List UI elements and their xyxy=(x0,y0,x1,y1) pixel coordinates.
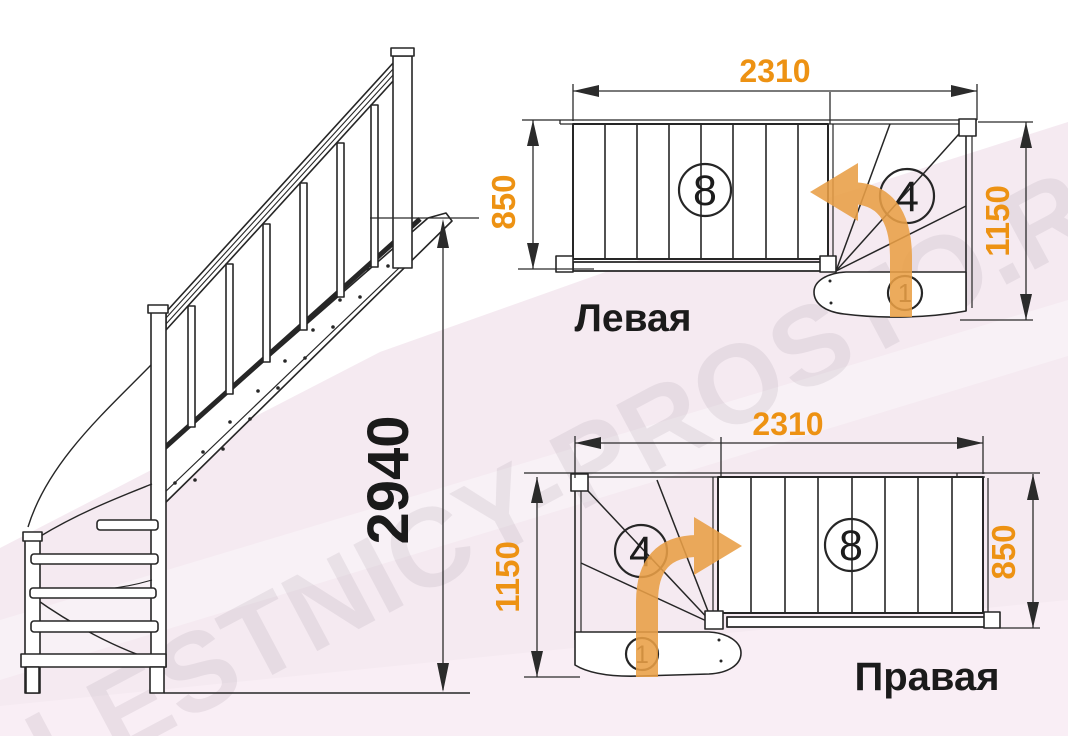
turn-depth-value: 1150 xyxy=(979,185,1016,257)
total-height-value: 2940 xyxy=(356,415,421,544)
arrowhead-down-icon xyxy=(437,663,449,692)
newel-square xyxy=(705,611,723,629)
flight-width-value: 850 xyxy=(485,174,522,229)
stair-drawing-sheet: LESTNICY-PROSTO.RU xyxy=(0,0,1068,736)
plan-left: 8 4 1 2310 xyxy=(485,53,1033,340)
middle-newel-cap xyxy=(148,305,168,313)
stair-side-elevation xyxy=(21,48,470,693)
bottom-newel-cap xyxy=(23,532,42,541)
middle-newel-post xyxy=(151,312,166,667)
plan-right: 8 4 1 2310 xyxy=(489,406,1040,699)
length-value: 2310 xyxy=(752,406,823,442)
plan-left-dimension-turn-depth: 1150 xyxy=(960,122,1033,320)
plan-right-dimension-turn-depth: 1150 xyxy=(489,477,580,677)
plan-right-dimension-length: 2310 xyxy=(575,406,983,478)
winder-stringer-curve xyxy=(28,365,151,527)
plan-left-dimension-length: 2310 xyxy=(573,53,977,124)
foot xyxy=(150,667,164,693)
length-value: 2310 xyxy=(739,53,810,89)
flight-stringer xyxy=(727,617,988,627)
top-newel-cap xyxy=(391,48,414,56)
straight-steps-count: 8 xyxy=(839,522,863,570)
base-rail xyxy=(21,654,166,667)
newel-square xyxy=(820,256,836,272)
foot xyxy=(26,667,39,693)
newel-square xyxy=(959,119,976,136)
straight-steps-count: 8 xyxy=(693,167,717,215)
diagram-canvas: 2940 xyxy=(0,0,1068,736)
newel-square xyxy=(571,474,588,491)
top-newel-post xyxy=(393,56,412,268)
turn-depth-value: 1150 xyxy=(489,541,526,613)
newel-square xyxy=(984,612,1000,628)
plan-right-dimension-width: 850 xyxy=(983,473,1040,628)
flight-width-value: 850 xyxy=(985,524,1022,579)
plan-left-label: Левая xyxy=(575,297,692,340)
winder-treads xyxy=(30,520,158,632)
flight-stringer xyxy=(573,262,823,271)
plan-right-label: Правая xyxy=(854,655,999,699)
